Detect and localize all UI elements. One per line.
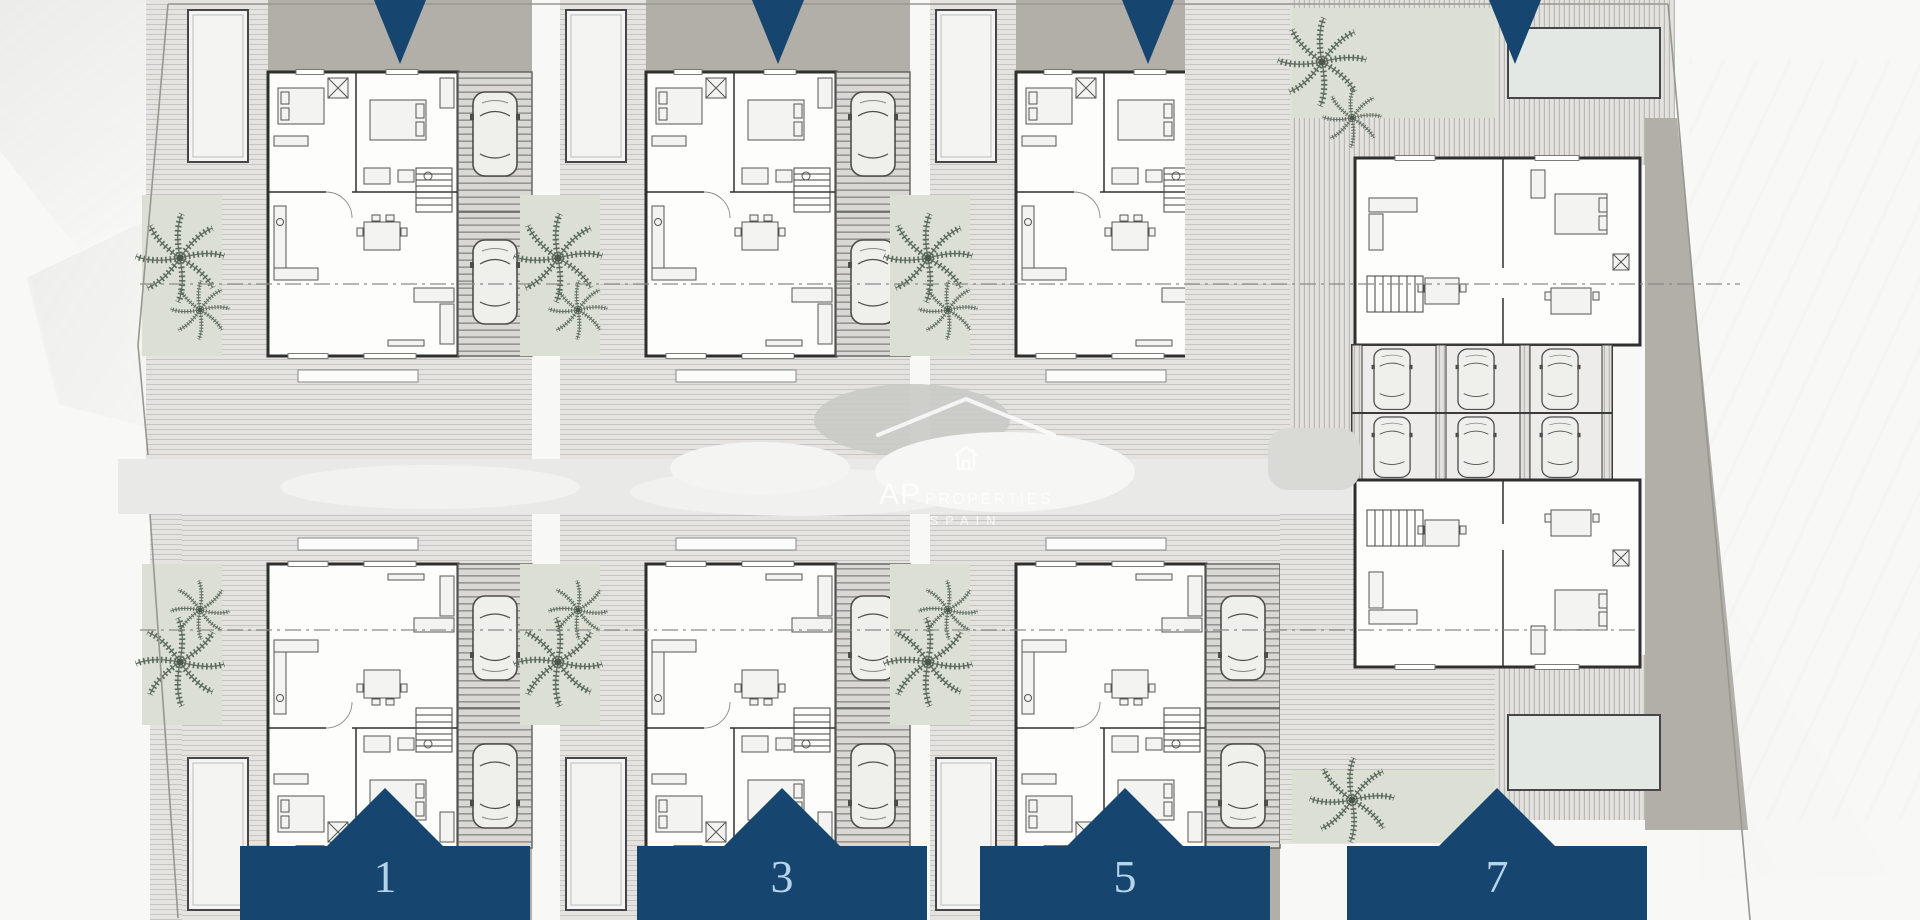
unit-arrow-top-1[interactable] — [374, 0, 426, 64]
house-footprint — [1355, 480, 1640, 670]
unit-marker-5[interactable]: 5 — [980, 846, 1270, 920]
unit-marker-1[interactable]: 1 — [240, 846, 530, 920]
unit-number: 3 — [637, 854, 927, 900]
unit-marker-7[interactable]: 7 — [1347, 846, 1647, 920]
villa-unit-4 — [514, 0, 910, 460]
house-footprint — [1355, 156, 1640, 346]
swimming-pool — [1508, 715, 1660, 790]
unit-arrow-top-4[interactable] — [1489, 0, 1541, 64]
site-plan-canvas: 1 3 5 7 AP PROPERTIES SPAIN — [0, 0, 1920, 920]
unit-marker-3[interactable]: 3 — [637, 846, 927, 920]
photo-blob — [875, 432, 1135, 512]
unit-number: 1 — [240, 854, 530, 900]
unit-arrow-top-2[interactable] — [752, 0, 804, 64]
unit-number: 5 — [980, 854, 1270, 900]
unit-number: 7 — [1347, 854, 1647, 900]
floor-plan-drawing — [0, 0, 1920, 920]
unit-arrow-top-3[interactable] — [1122, 0, 1174, 64]
garage-court — [1352, 345, 1612, 480]
villa-unit-2 — [136, 0, 532, 460]
